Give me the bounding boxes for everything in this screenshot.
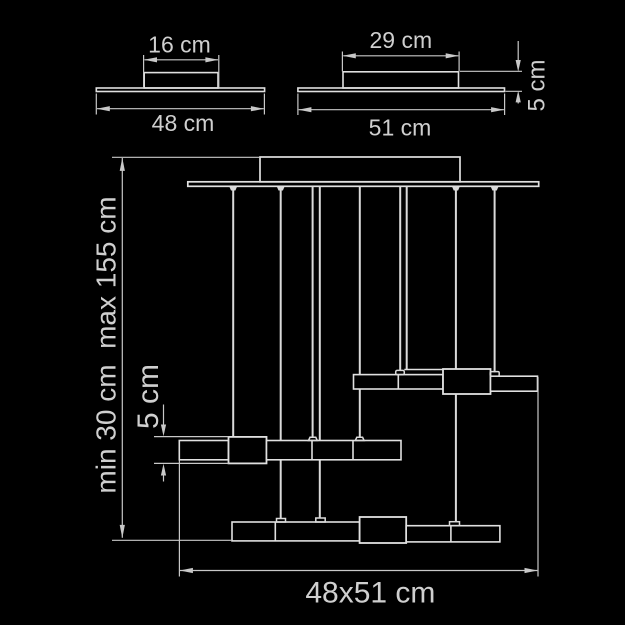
svg-text:min 30 cm max 155 cm: min 30 cm max 155 cm bbox=[91, 196, 122, 493]
svg-text:48 cm: 48 cm bbox=[152, 110, 215, 136]
svg-text:16 cm: 16 cm bbox=[148, 32, 211, 58]
svg-text:29 cm: 29 cm bbox=[369, 27, 432, 53]
svg-text:51 cm: 51 cm bbox=[369, 115, 432, 141]
svg-text:5 cm: 5 cm bbox=[524, 59, 551, 111]
svg-text:5 cm: 5 cm bbox=[132, 364, 165, 429]
svg-text:48x51 cm: 48x51 cm bbox=[305, 577, 435, 610]
